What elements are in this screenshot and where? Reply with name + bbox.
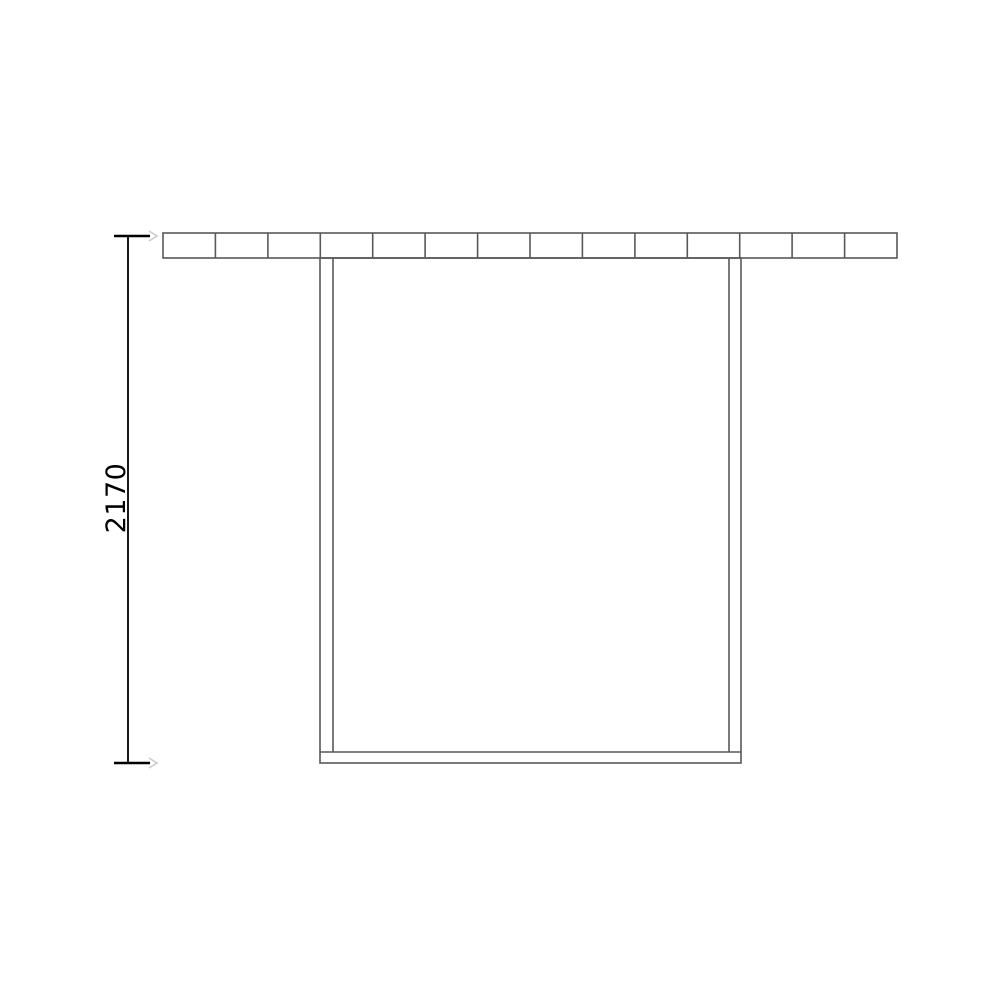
elevation-drawing: 2170 (0, 0, 1000, 1000)
top-rail-segment-dividers (215, 233, 844, 258)
technical-drawing-canvas: 2170 (0, 0, 1000, 1000)
door-panel (320, 258, 741, 763)
dimension-chevron-bottom-icon (149, 758, 157, 768)
dimension-label: 2170 (101, 463, 132, 534)
top-rail (163, 233, 897, 258)
panel-outline (320, 258, 741, 763)
dimension-chevron-top-icon (149, 231, 157, 241)
height-dimension: 2170 (101, 231, 157, 768)
